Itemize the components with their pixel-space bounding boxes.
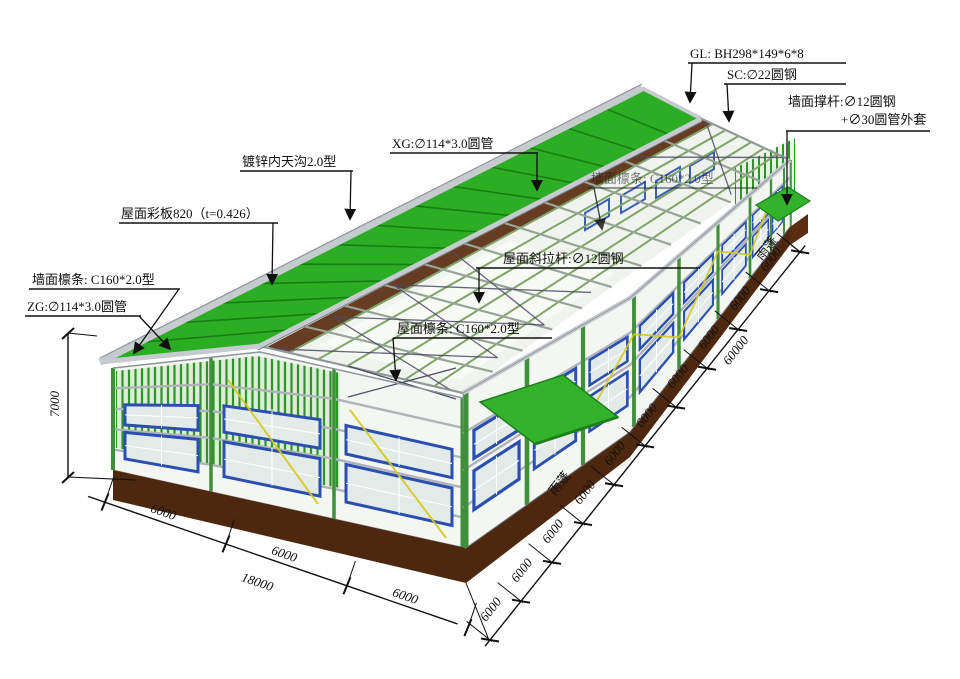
label-roof-panel: 屋面彩板820（t=0.426）	[121, 206, 259, 221]
label-gutter: 镀锌内天沟2.0型	[242, 154, 336, 169]
label-sc-rod: SC:∅22圆钢	[727, 67, 797, 82]
frame-line	[498, 582, 523, 602]
dim-gable-seg: 6000	[270, 542, 300, 565]
leader-arrow	[690, 63, 692, 102]
dim-gable-total: 18000	[240, 569, 276, 594]
dim-side-seg: 6000	[508, 555, 536, 585]
frame-line	[68, 333, 97, 336]
frame-line	[346, 561, 356, 589]
dim-side-total: 60000	[719, 332, 751, 367]
structure-3d-diagram: GL: BH298*149*6*8 SC:∅22圆钢 墙面撑杆:∅12圆钢 +∅…	[0, 0, 960, 679]
label-wall-strut-line2: +∅30圆管外套	[841, 112, 926, 127]
label-gl-beam: GL: BH298*149*6*8	[690, 46, 804, 61]
frame-line	[560, 505, 585, 525]
dim-height: 7000	[47, 391, 62, 418]
label-far-wall-purlin: 墙面檩条: C160*2.0型	[591, 171, 714, 186]
frame-line	[467, 603, 477, 631]
label-roof-diagonal-tie: 屋面斜拉杆:∅12圆钢	[503, 251, 624, 266]
dim-gable-seg: 6000	[391, 584, 421, 607]
wall-base-corner	[790, 214, 808, 245]
frame-line	[104, 477, 114, 505]
drawing-canvas: GL: BH298*149*6*8 SC:∅22圆钢 墙面撑杆:∅12圆钢 +∅…	[0, 0, 960, 679]
label-xg-pipe: XG:∅114*3.0圆管	[392, 136, 493, 151]
label-zg-pipe: ZG:∅114*3.0圆管	[27, 299, 127, 314]
label-gable-wall-purlin: 墙面檩条: C160*2.0型	[32, 272, 155, 287]
leader-arrow	[727, 84, 729, 121]
label-wall-strut-line1: 墙面撑杆:∅12圆钢	[788, 94, 896, 109]
frame-line	[529, 544, 554, 564]
label-roof-purlin: 屋面檩条: C160*2.0型	[397, 321, 520, 336]
leader-arrow	[350, 171, 351, 219]
